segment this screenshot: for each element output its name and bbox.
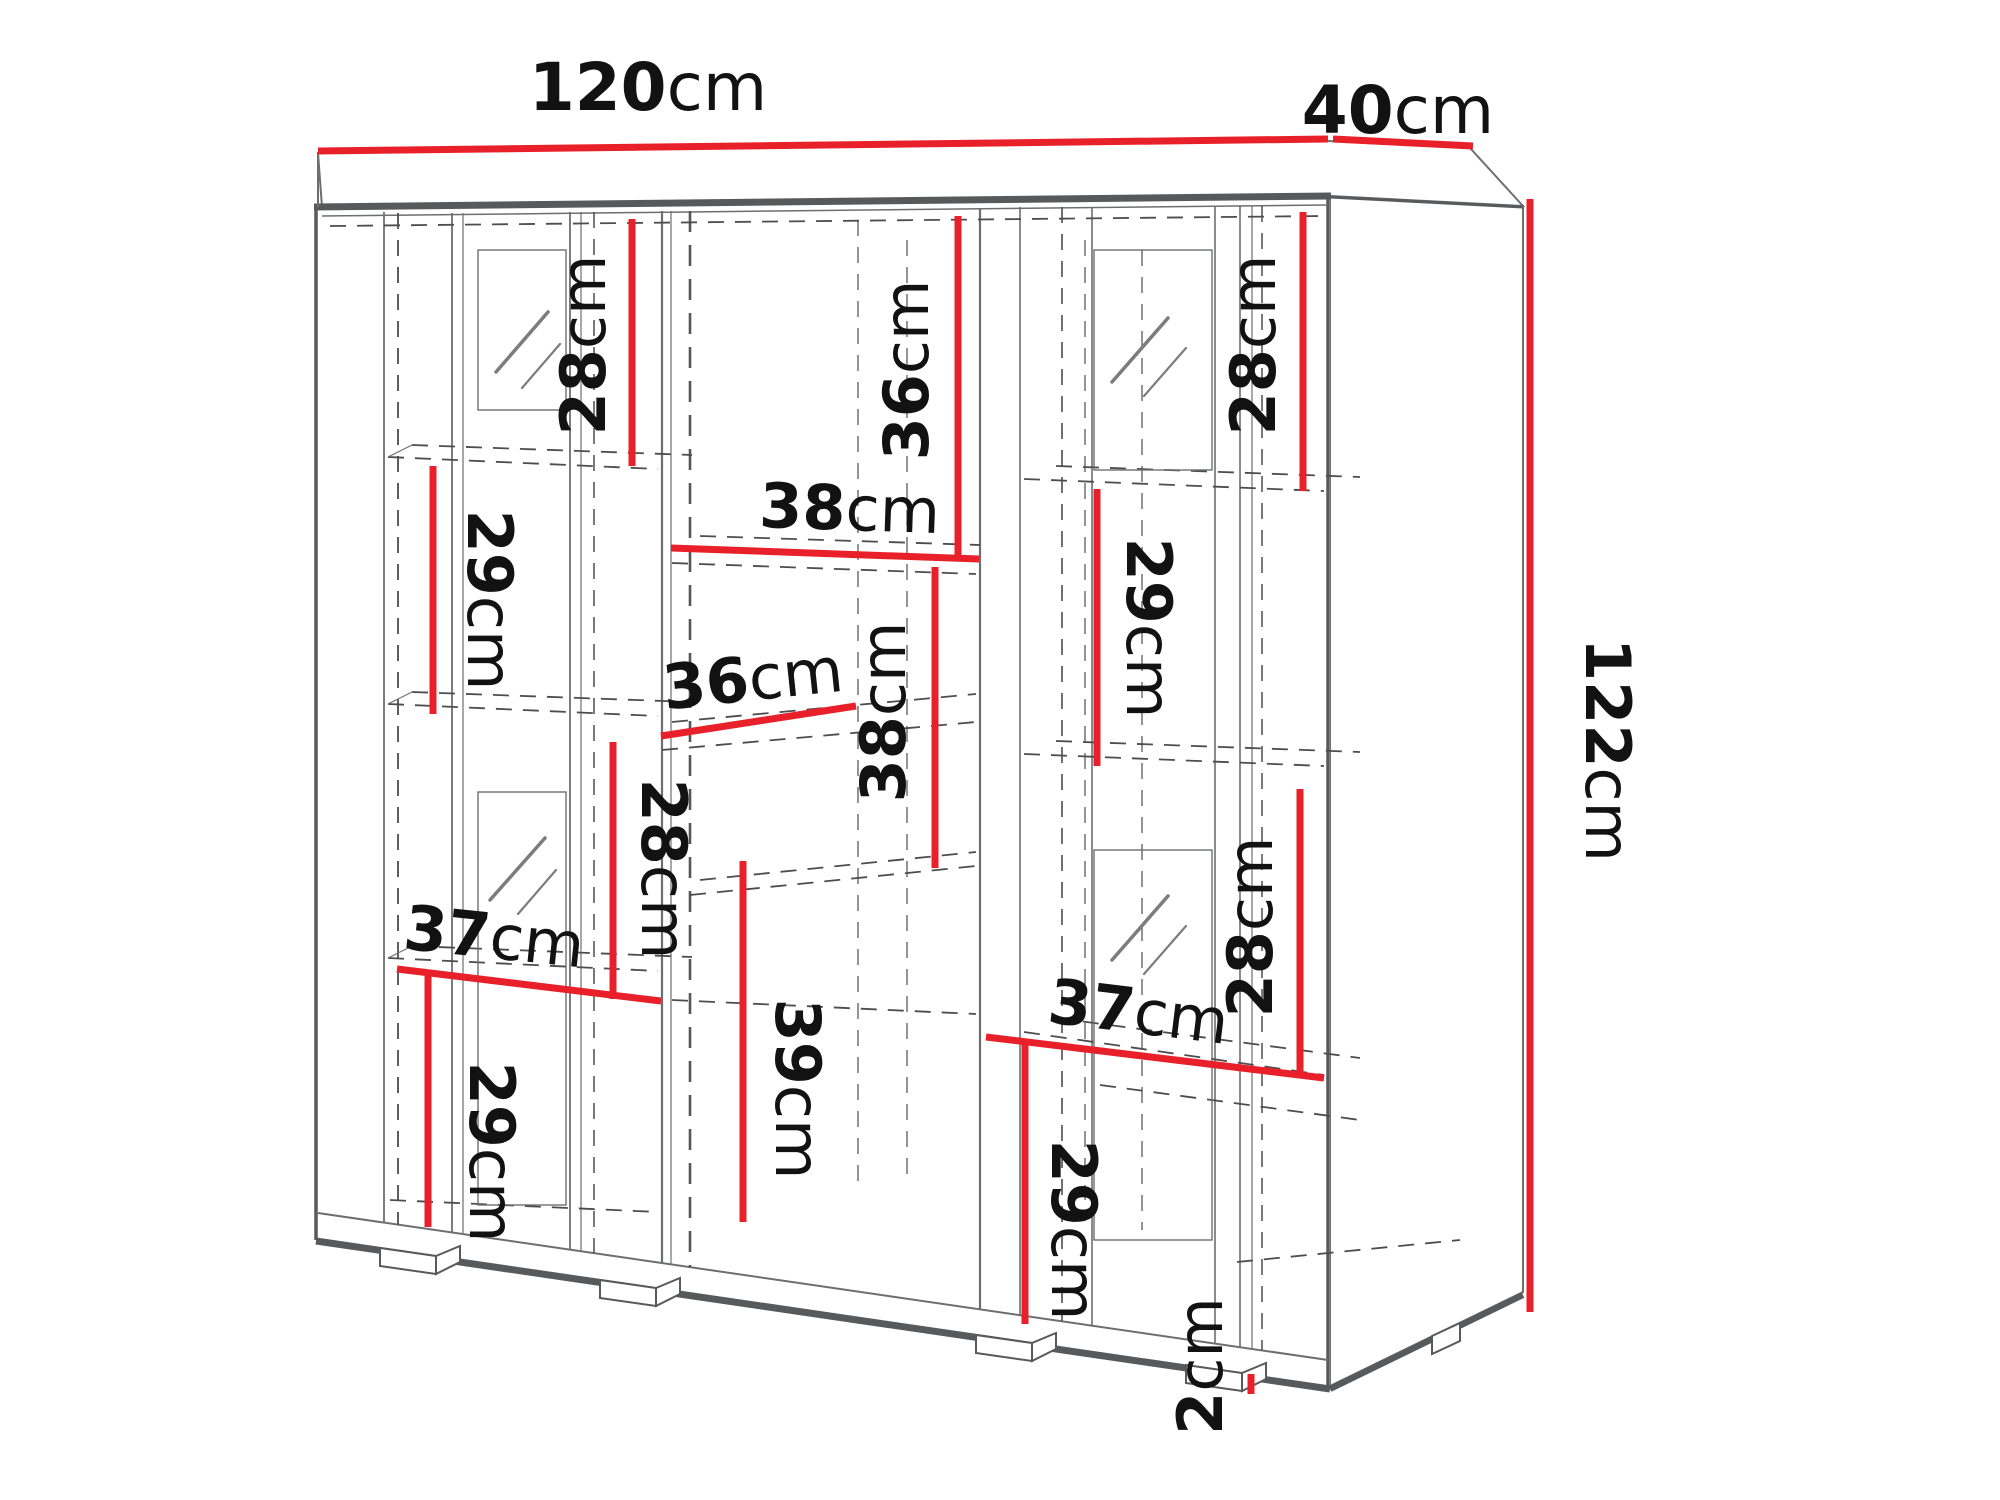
- dimension-label-plinth-2: 2cm: [1164, 1297, 1237, 1435]
- dimension-label-middle-left-28: 28cm: [627, 779, 700, 960]
- dimension-label-left-29: 29cm: [453, 510, 526, 691]
- cabinet-side-face: [1330, 196, 1523, 1386]
- dimension-label-top-left-28: 28cm: [547, 255, 620, 436]
- dimension-label-bottom-left-29: 29cm: [455, 1062, 528, 1243]
- dimension-label-width-120: 120cm: [529, 49, 767, 126]
- dimension-label-lower-right-28: 28cm: [1214, 837, 1287, 1018]
- dimension-label-height-122: 122cm: [1571, 638, 1644, 862]
- dimension-label-bottom-right-29: 29cm: [1037, 1140, 1110, 1321]
- dimension-label-middle-39: 39cm: [761, 999, 834, 1180]
- dimension-label-depth-40: 40cm: [1302, 72, 1494, 149]
- dimension-label-right-29: 29cm: [1112, 538, 1185, 719]
- dimension-label-shelf-width-38: 38cm: [758, 469, 941, 548]
- furniture-dimension-diagram: 120cm 40cm 122cm 28cm 36cm 28cm 38cm 29c…: [0, 0, 2000, 1500]
- dimension-label-middle-38: 38cm: [847, 622, 920, 803]
- diagram-canvas: 120cm 40cm 122cm 28cm 36cm 28cm 38cm 29c…: [0, 0, 2000, 1500]
- dimension-label-top-middle-36: 36cm: [870, 280, 943, 461]
- dimension-label-top-right-28: 28cm: [1217, 255, 1290, 436]
